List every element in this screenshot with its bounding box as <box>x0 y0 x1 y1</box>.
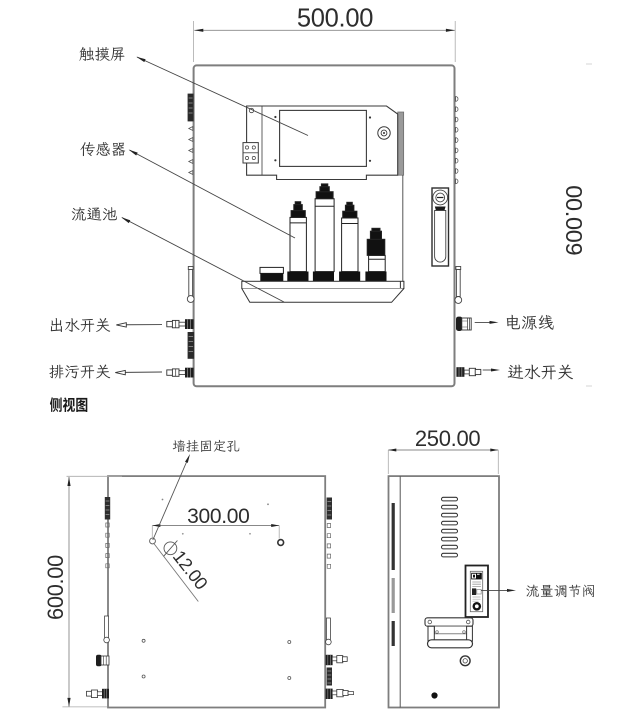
svg-text:300.00: 300.00 <box>187 505 249 528</box>
svg-text:250.00: 250.00 <box>415 426 481 451</box>
svg-text:00.009: 00.009 <box>561 185 587 255</box>
svg-text:600.00: 600.00 <box>43 555 68 620</box>
svg-text:500.00: 500.00 <box>297 5 373 33</box>
